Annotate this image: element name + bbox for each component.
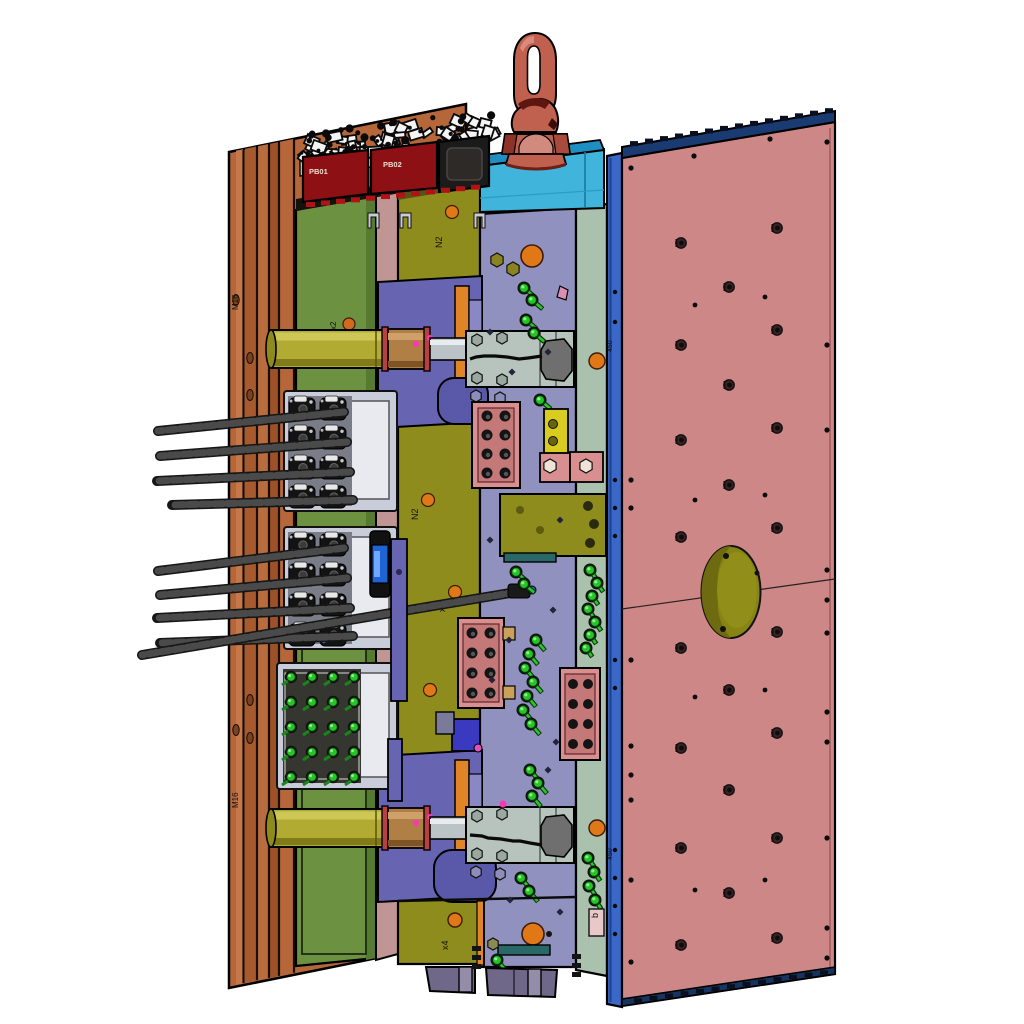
svg-text:PB01: PB01 [309,167,328,176]
svg-text:N2: N2 [410,508,420,520]
svg-text:450: 450 [607,848,614,860]
svg-text:b: b [590,913,600,918]
svg-text:M16: M16 [231,294,240,310]
svg-text:450: 450 [607,340,614,352]
svg-text:PB02: PB02 [383,160,402,169]
svg-text:M16: M16 [231,792,240,808]
svg-text:x2: x2 [329,321,338,330]
svg-text:x4: x4 [440,940,450,950]
svg-text:N2: N2 [434,236,444,248]
